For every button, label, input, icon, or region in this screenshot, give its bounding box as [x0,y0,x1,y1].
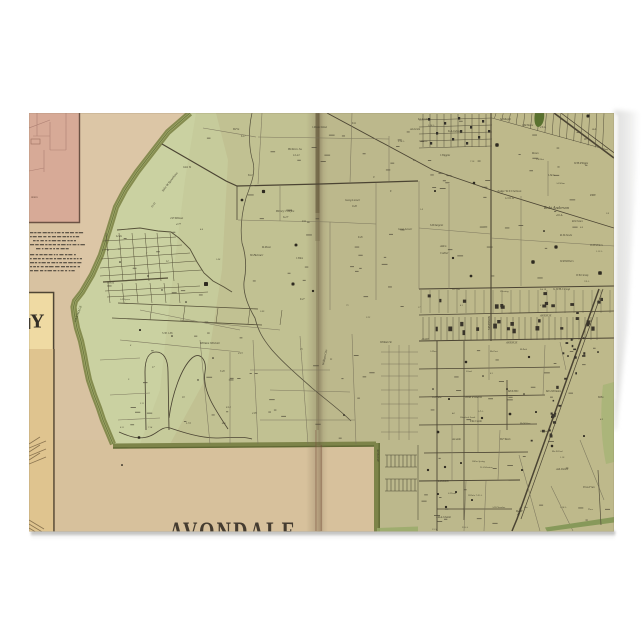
svg-text:John W.: John W. [183,166,192,169]
svg-text:W.H.Phipps: W.H.Phipps [574,161,589,165]
svg-text:W.M.Willers: W.M.Willers [590,244,603,247]
svg-text:8.11: 8.11 [248,174,253,177]
svg-text:J.H.Spoon: J.H.Spoon [120,298,131,301]
svg-text:..DALE: ..DALE [421,338,429,341]
svg-text:13.A: 13.A [432,528,437,531]
svg-text:2.6 A.: 2.6 A. [540,126,546,129]
svg-text:H.Hale 7.16 A.: H.Hale 7.16 A. [467,494,483,497]
svg-text:8.11: 8.11 [120,426,124,429]
svg-text:J.Hine: J.Hine [430,350,436,353]
svg-text:WEST: WEST [107,281,115,285]
svg-text:Wheelork Lamb: Wheelork Lamb [460,416,476,419]
svg-text:B.F.Wash: B.F.Wash [500,438,511,441]
svg-text:U.S.A.: U.S.A. [462,526,469,529]
svg-text:2.13: 2.13 [238,352,243,355]
svg-text:4.6 A.: 4.6 A. [556,213,563,217]
svg-text:K.A.Johnson: K.A.Johnson [447,130,463,133]
svg-text:1.12 A.: 1.12 A. [596,250,603,253]
svg-text:Thos.: Thos. [588,508,594,511]
svg-text:Cloud: Cloud [466,370,473,373]
svg-text:Mr.Gest: Mr.Gest [489,350,498,353]
svg-text:3.11: 3.11 [140,402,144,405]
svg-text:A.Gillian: A.Gillian [555,182,566,185]
svg-text:J.Moore Klout: J.Moore Klout [312,126,327,129]
svg-text:9.20: 9.20 [352,205,357,208]
svg-text:Geog Lesser: Geog Lesser [398,228,413,231]
svg-text:1.38 A.: 1.38 A. [428,124,435,127]
svg-text:Mrs.Williams: Mrs.Williams [545,390,561,393]
svg-text:8.11: 8.11 [352,122,357,125]
svg-text:Henry Corfes: Henry Corfes [275,209,295,213]
svg-text:1.16 A.: 1.16 A. [560,506,567,509]
svg-text:6.1: 6.1 [490,372,493,375]
svg-text:J.B.: J.B. [588,320,592,323]
svg-text:Lim: Lim [523,506,528,509]
svg-text:6.17: 6.17 [241,135,246,138]
svg-text:B.Ha: B.Ha [598,396,604,399]
svg-text:A.A.: A.A. [591,128,597,131]
svg-text:G.W.H.Clesup: G.W.H.Clesup [553,287,571,291]
svg-text:J.P.A.: J.P.A. [478,410,484,413]
svg-text:8.26: 8.26 [358,236,363,239]
svg-text:Hebron Ju.: Hebron Ju. [287,147,302,151]
svg-text:Lik 10: Lik 10 [539,288,547,291]
svg-text:Y: Y [30,311,45,333]
svg-text:J.Wine: J.Wine [296,257,304,260]
svg-text:William W.: William W. [380,341,392,344]
svg-text:AVENUE: AVENUE [505,341,518,345]
svg-text:Geog Lesser: Geog Lesser [345,198,361,202]
svg-text:MADISON: MADISON [487,315,491,330]
svg-text:Judge W.T.Chelson: Judge W.T.Chelson [497,189,522,193]
svg-text:mmm: mmm [31,195,38,199]
svg-text:9.11: 9.11 [302,220,307,223]
svg-text:2.03: 2.03 [252,412,257,415]
svg-text:Mo.W.Paul: Mo.W.Paul [551,450,563,453]
svg-text:J.Wiggins: J.Wiggins [440,154,450,157]
svg-text:12.21: 12.21 [293,153,300,157]
svg-text:J.M.Stone: J.M.Stone [522,124,534,127]
svg-text:John Pickens: John Pickens [465,395,483,399]
svg-text:W.W.Clesup: W.W.Clesup [576,274,589,277]
svg-text:3.20: 3.20 [220,370,225,373]
svg-text:W.Bulmer: W.Bulmer [250,253,264,257]
svg-text:4.1: 4.1 [460,304,463,307]
svg-text:4.14: 4.14 [226,406,231,409]
svg-text:S.B.Sargent: S.B.Sargent [430,224,443,227]
svg-text:N.T.Wirt: N.T.Wirt [451,288,460,291]
svg-text:B.Fin: B.Fin [233,128,240,131]
svg-text:K.Lincoln: K.Lincoln [417,118,429,121]
svg-text:MOUND: MOUND [507,390,518,393]
svg-text:R.W.Jewis: R.W.Jewis [559,233,573,237]
svg-text:6.27: 6.27 [283,215,289,219]
svg-text:Allen: Allen [439,244,447,248]
svg-text:4.77: 4.77 [176,223,181,226]
svg-text:A.Lamb: A.Lamb [451,438,461,441]
svg-text:AVENUE: AVENUE [539,314,552,318]
svg-text:J.P.Wilson: J.P.Wilson [170,216,184,220]
svg-text:J.R.A.Chamb: J.R.A.Chamb [436,516,451,519]
svg-text:PIKE: PIKE [589,194,596,197]
svg-text:5.30 1.06: 5.30 1.06 [162,332,173,335]
svg-text:R.W.Jones: R.W.Jones [571,220,583,223]
svg-text:AVENUE: AVENUE [376,449,380,462]
svg-text:11.91 A.: 11.91 A. [505,197,514,200]
svg-text:R.P.Web: R.P.Web [539,430,549,433]
svg-text:S.Climer: S.Climer [448,492,457,495]
svg-text:Collier: Collier [440,251,449,255]
svg-text:Willer Spring: Willer Spring [472,460,486,463]
svg-text:7.6 A.: 7.6 A. [584,280,590,283]
svg-text:Jo.Blake: Jo.Blake [432,396,442,399]
svg-text:LINDEN: LINDEN [437,479,450,483]
svg-text:William Wilshire: William Wilshire [200,341,221,345]
svg-text:M.Reid: M.Reid [519,348,528,351]
svg-text:Lewis: Lewis [115,235,122,238]
svg-text:N.A.Wimston: N.A.Wimston [479,466,493,469]
svg-text:Mr.Millens: Mr.Millens [519,422,530,425]
svg-text:M.Moon: M.Moon [261,246,272,249]
svg-text:1.74: 1.74 [186,422,191,425]
svg-text:Clesuing: Clesuing [500,290,509,293]
svg-text:S.W.Regill: S.W.Regill [500,118,511,121]
svg-text:5.18 A.: 5.18 A. [398,140,405,143]
svg-text:A.Lincoln: A.Lincoln [409,128,421,131]
svg-text:Robt Anderson: Robt Anderson [543,205,569,210]
svg-text:A.H.Chamber: A.H.Chamber [491,506,505,509]
svg-text:Eliz.Comb: Eliz.Comb [469,420,482,423]
svg-text:8.27: 8.27 [300,298,305,301]
svg-text:Moses: Moses [531,152,539,155]
svg-text:W.P.Willers: W.P.Willers [560,259,575,263]
svg-text:Thos.Fran: Thos.Fran [583,486,595,489]
